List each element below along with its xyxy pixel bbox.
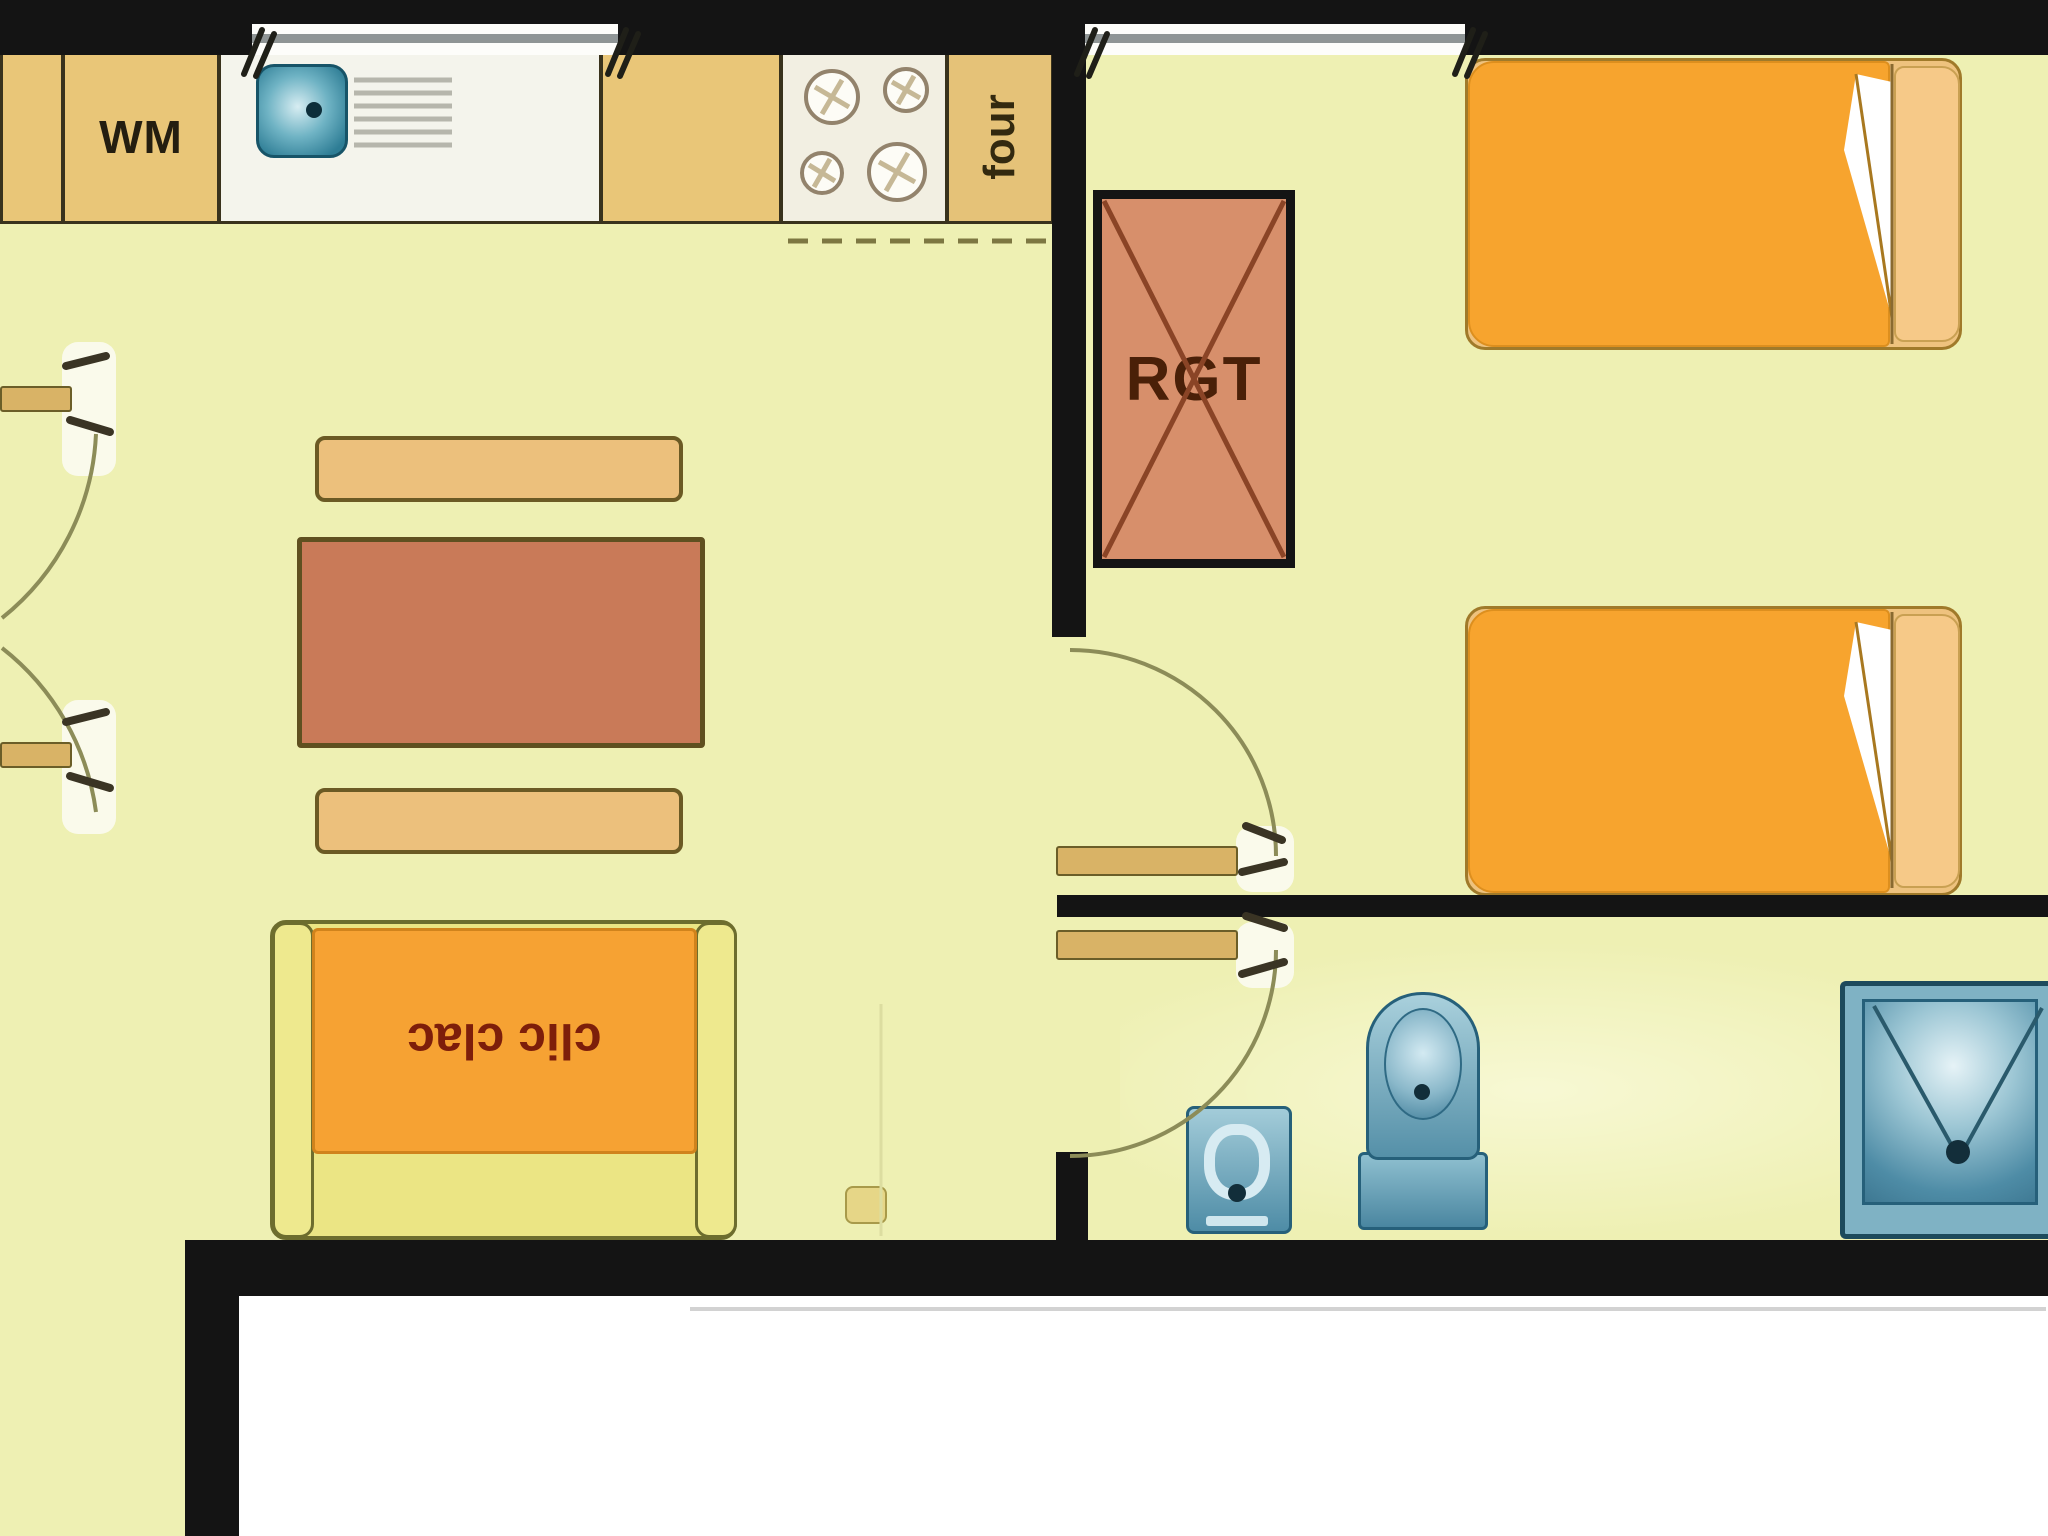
basin-drain-dot	[1414, 1084, 1430, 1100]
shower-tray	[1862, 999, 2038, 1205]
bench-bottom	[315, 788, 683, 854]
window-kitchen-glass	[252, 34, 618, 43]
french-door-left-bottom	[0, 742, 72, 768]
oven: four	[946, 50, 1054, 224]
sofa-armrest-left	[272, 922, 314, 1238]
storage-closet-label: RGT	[1126, 344, 1263, 415]
arc-bedroom-door	[1070, 650, 1276, 856]
stove-burners	[780, 50, 948, 224]
sofa-bed-label: clic clac	[407, 1012, 602, 1070]
toilet-tank-bar	[1206, 1216, 1268, 1226]
window-kitchen	[252, 24, 618, 55]
storage-closet: RGT	[1093, 190, 1295, 568]
washing-machine: WM	[62, 50, 220, 224]
wall-bedroom-bathroom	[1057, 895, 2048, 917]
outside-area	[239, 1296, 2048, 1536]
bedroom-door	[1056, 846, 1238, 876]
wall-bottom	[185, 1240, 2048, 1296]
basin-pedestal	[1358, 1152, 1488, 1230]
bed-2-pillow	[1894, 614, 1960, 888]
door-jamb-bathroom	[1236, 922, 1294, 988]
french-door-left-top	[0, 386, 72, 412]
washing-machine-label: WM	[99, 110, 183, 164]
oven-label: four	[975, 94, 1025, 180]
sofa-armrest-right	[695, 922, 737, 1238]
dining-table	[297, 537, 705, 748]
toilet-drain-dot	[1228, 1184, 1246, 1202]
basin-bowl	[1384, 1008, 1462, 1120]
window-bedroom	[1085, 24, 1465, 55]
window-bedroom-glass	[1085, 34, 1465, 43]
counter-mid	[600, 50, 782, 224]
counter-left	[0, 50, 64, 224]
door-jamb-bedroom	[1236, 826, 1294, 892]
threshold	[845, 1186, 887, 1224]
wall-bottom-left-return	[185, 1240, 239, 1536]
floor-plan: WM four RGT clic clac	[0, 0, 2048, 1536]
kitchen-sink	[256, 64, 348, 158]
bathroom-door	[1056, 930, 1238, 960]
sofa-seat: clic clac	[312, 928, 697, 1154]
bed-1-pillow	[1894, 66, 1960, 342]
wall-kitchen-bedroom	[1052, 55, 1086, 637]
bed-1-blanket	[1468, 61, 1890, 347]
wall-bathroom-stub	[1056, 1152, 1088, 1244]
bench-top	[315, 436, 683, 502]
sink-drain-dot	[306, 102, 322, 118]
bed-2-blanket	[1468, 609, 1890, 893]
